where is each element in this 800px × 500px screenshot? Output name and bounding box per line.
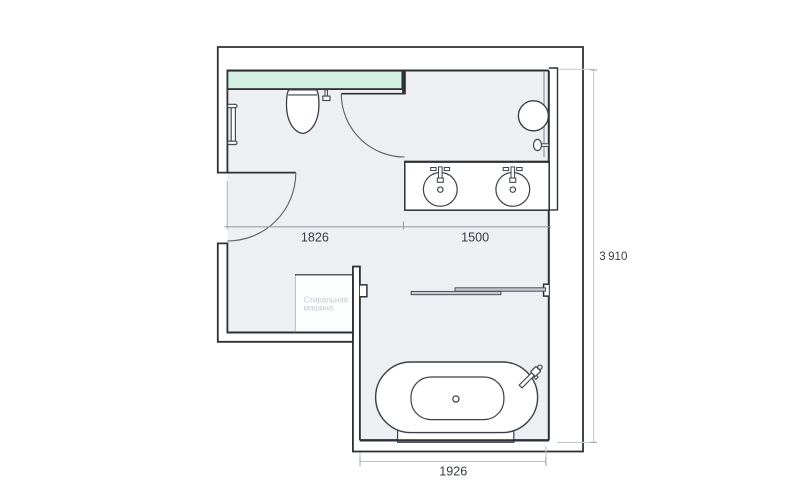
svg-text:1926: 1926 [439,465,467,479]
svg-text:1500: 1500 [461,230,489,244]
svg-text:машина: машина [304,303,334,312]
svg-text:1826: 1826 [301,230,329,244]
svg-text:3 910: 3 910 [599,250,627,263]
